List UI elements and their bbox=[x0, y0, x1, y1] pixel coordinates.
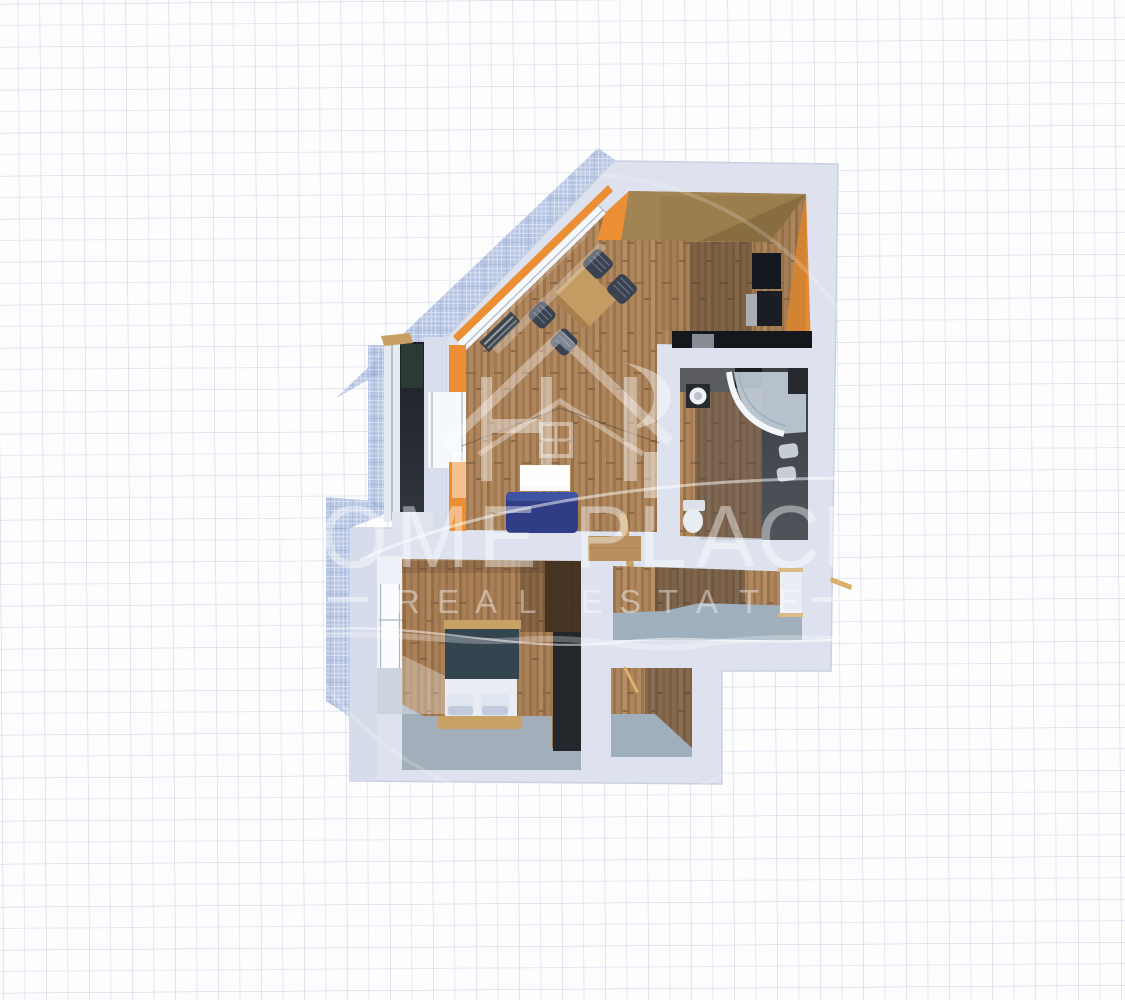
svg-text:REAL ESTATE: REAL ESTATE bbox=[396, 583, 800, 620]
